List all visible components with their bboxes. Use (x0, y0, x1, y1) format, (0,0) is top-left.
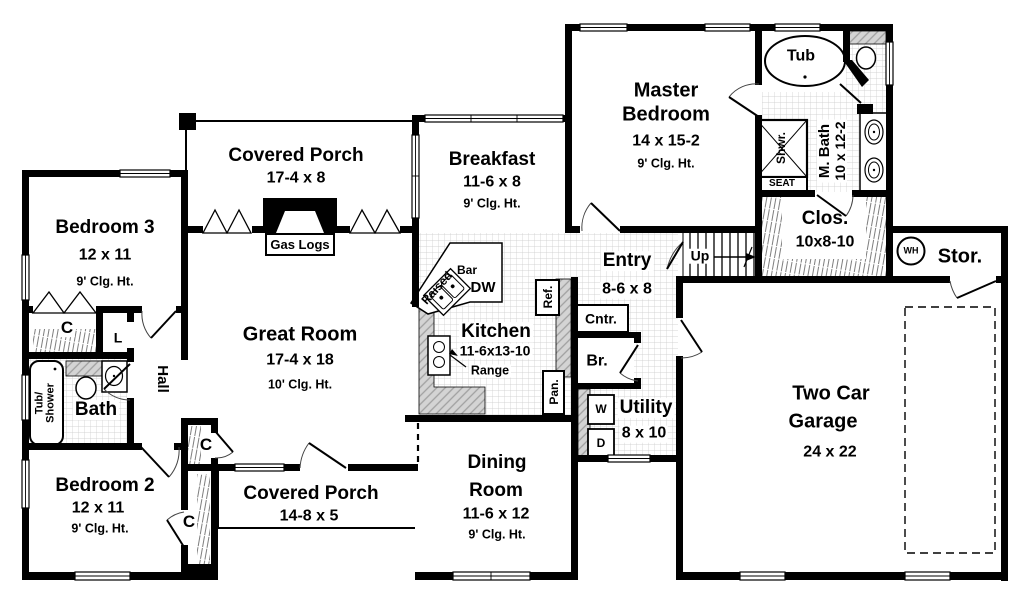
label-bar: Bar (457, 264, 477, 276)
dims-master: 14 x 15-2 (632, 134, 700, 151)
room-label-garage-line2: Garage (789, 412, 858, 433)
room-label-porch-front: Covered Porch (243, 484, 378, 504)
dims-dining: 11-6 x 12 (463, 507, 530, 524)
toilet-icon (76, 377, 96, 399)
label-pantry: Pan. (548, 379, 560, 404)
ceiling-dining: 9' Clg. Ht. (468, 529, 525, 542)
dims-breakfast: 11-6 x 8 (463, 175, 521, 192)
ceiling-breakfast: 9' Clg. Ht. (463, 198, 520, 211)
room-label-dining-line2: Room (469, 481, 523, 501)
label-tub: Tub (787, 49, 815, 66)
label-washer: W (595, 403, 606, 415)
dims-bedroom3: 12 x 11 (79, 248, 132, 265)
room-label-bath: Bath (73, 400, 119, 420)
room-label-master-bath: M. Bath 10 x 12-2 (817, 119, 847, 182)
label-closet-bedroom2: C (183, 513, 195, 531)
floor-plan: Bedroom 3 12 x 11 9' Clg. Ht. Covered Po… (0, 0, 1024, 603)
master-toilet-icon (857, 47, 876, 69)
ceiling-bedroom3: 9' Clg. Ht. (76, 276, 133, 289)
label-range: Range (469, 365, 511, 378)
dims-great-room: 17-4 x 18 (266, 353, 334, 370)
label-closet-bedroom3: C (59, 319, 75, 337)
room-label-great-room: Great Room (243, 325, 357, 346)
room-label-porch-rear: Covered Porch (228, 146, 363, 166)
room-label-kitchen: Kitchen (459, 322, 533, 342)
label-counter: Cntr. (585, 312, 617, 327)
ceiling-master: 9' Clg. Ht. (637, 158, 694, 171)
dims-entry: 8-6 x 8 (600, 282, 654, 299)
ceiling-bedroom2: 9' Clg. Ht. (71, 523, 128, 536)
room-label-dining-line1: Dining (467, 453, 526, 473)
dims-porch-rear: 17-4 x 8 (267, 171, 326, 188)
room-label-broom-closet: Br. (586, 354, 607, 371)
label-gas-logs: Gas Logs (270, 238, 329, 252)
label-tub-shower: Tub/ Shower (35, 383, 58, 423)
label-linen: L (114, 331, 123, 346)
room-label-garage-line1: Two Car (792, 384, 869, 405)
room-label-bedroom2: Bedroom 2 (55, 476, 154, 496)
room-label-hall: Hall (154, 365, 170, 393)
label-refrigerator: Ref. (542, 286, 554, 309)
label-dishwasher: DW (471, 280, 496, 296)
room-label-breakfast: Breakfast (449, 150, 536, 170)
label-water-heater: WH (904, 246, 919, 255)
room-label-storage: Stor. (938, 247, 982, 268)
dims-kitchen: 11-6x13-10 (458, 344, 533, 359)
label-up: Up (689, 249, 712, 264)
label-dryer: D (597, 437, 606, 449)
label-seat: SEAT (769, 179, 795, 189)
garage-dashed-area (905, 307, 995, 553)
room-label-master-line1: Master (634, 81, 698, 102)
label-shower: Shwr. (775, 132, 787, 164)
dims-closet: 10x8-10 (796, 235, 855, 252)
room-label-master-line2: Bedroom (622, 105, 710, 126)
dims-bedroom2: 12 x 11 (72, 501, 125, 518)
porch-post (179, 113, 196, 130)
ceiling-great-room: 10' Clg. Ht. (268, 379, 332, 392)
dims-porch-front: 14-8 x 5 (280, 509, 339, 526)
room-label-closet: Clos. (802, 209, 848, 229)
room-label-utility: Utility (618, 398, 675, 418)
dims-utility: 8 x 10 (620, 426, 668, 443)
label-closet-walkway: C (200, 436, 212, 454)
dims-garage: 24 x 22 (803, 445, 856, 462)
room-label-bedroom3: Bedroom 3 (55, 218, 154, 238)
room-label-entry: Entry (601, 251, 654, 271)
